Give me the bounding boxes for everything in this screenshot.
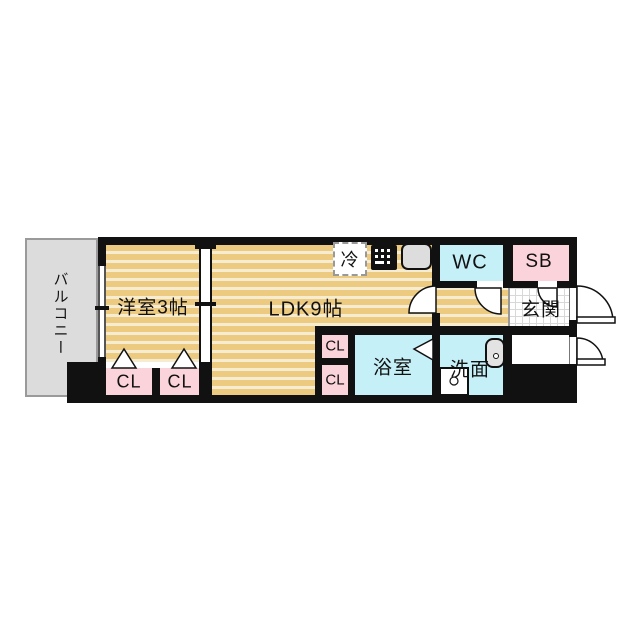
- ldk-label: LDK9帖: [268, 293, 343, 322]
- closet-left-1-label: CL: [116, 372, 141, 393]
- bathroom-door-mark: [414, 339, 433, 360]
- sb-label: SB: [525, 251, 552, 273]
- kitchen-sink-icon: [402, 243, 431, 270]
- balcony-label: バルコニー: [50, 272, 71, 357]
- refrigerator-label: 冷: [341, 246, 360, 272]
- western-room-label: 洋室3帖: [117, 293, 189, 320]
- entrance-label: 玄関: [521, 295, 561, 322]
- wc-label: WC: [452, 252, 487, 275]
- closet-mid-lower-label: CL: [325, 372, 344, 389]
- ldk-hall-door-swing: [409, 286, 436, 313]
- wc-door-swing: [475, 288, 501, 314]
- closet-folding-door-mark-1: [112, 349, 136, 368]
- washroom-label: 洗面: [450, 355, 490, 382]
- closet-folding-door-mark-2: [172, 349, 196, 368]
- stove-icon: [371, 245, 397, 270]
- storage-door-leaf: [577, 359, 605, 365]
- floor-plan: バルコニー 洋室3帖 LDK9帖 冷 WC SB 玄関 浴室 洗面 CL CL …: [0, 0, 640, 640]
- closet-left-2-label: CL: [167, 372, 192, 393]
- closet-mid-upper-label: CL: [325, 338, 344, 355]
- front-door-leaf: [577, 317, 615, 323]
- bathroom-label: 浴室: [373, 353, 413, 380]
